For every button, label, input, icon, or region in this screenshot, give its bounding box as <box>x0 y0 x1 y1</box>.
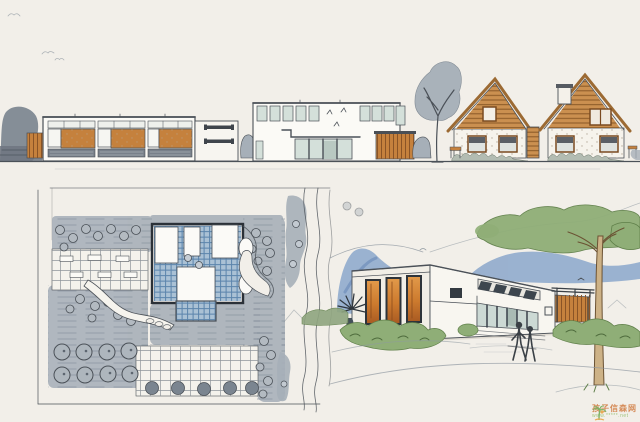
watermark: 孩子信森网 www.*****.net <box>592 405 637 419</box>
chimney <box>556 84 573 104</box>
glazed-court <box>176 301 216 321</box>
glowing-window-bays <box>366 276 421 324</box>
ground-floor-glazing <box>295 139 352 159</box>
parking-court-left <box>52 249 148 290</box>
cottage-window <box>499 136 517 152</box>
roof-block <box>177 267 215 303</box>
cottage-window <box>556 136 574 152</box>
gable-window <box>483 107 496 121</box>
architectural-sketch <box>0 0 640 422</box>
timber-canopy <box>374 131 416 159</box>
low-pavilion <box>43 114 195 161</box>
pavilion-bay <box>98 121 145 157</box>
scanned-sketch-page: 孩子信森网 www.*****.net <box>0 0 640 422</box>
timber-column <box>527 127 539 158</box>
cottage-window <box>468 136 486 152</box>
roof-block <box>212 225 238 258</box>
pavilion-bay <box>48 121 95 157</box>
palm-tree-logo-icon <box>592 405 607 421</box>
courtyard-tree <box>196 262 203 269</box>
courtyard-tree <box>185 255 192 262</box>
roof-block <box>184 227 200 256</box>
slot-window-wall <box>195 121 238 161</box>
pavilion-bay <box>148 121 192 157</box>
cottage-window <box>600 136 618 152</box>
facade-slot-window <box>450 288 462 298</box>
gable-window <box>590 109 611 125</box>
roof-block <box>155 227 178 263</box>
